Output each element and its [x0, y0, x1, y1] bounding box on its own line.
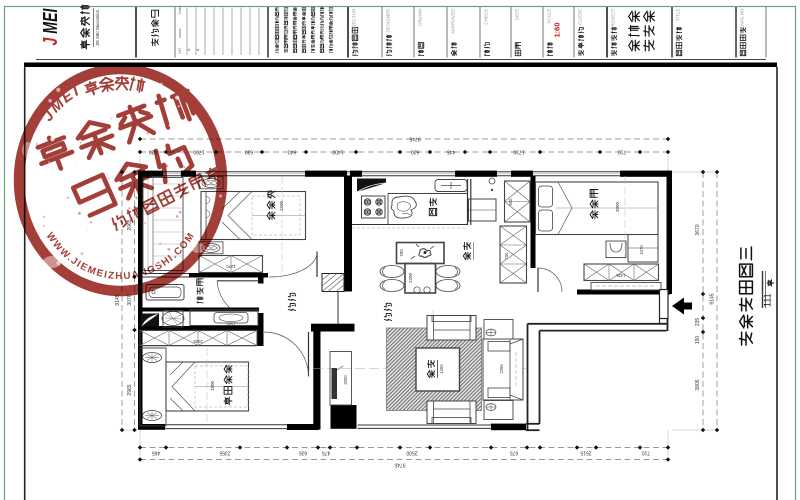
svg-text:700: 700 [399, 249, 404, 257]
svg-text:710: 710 [618, 149, 627, 155]
svg-text:1800: 1800 [210, 380, 215, 391]
svg-text:3805: 3805 [695, 379, 701, 390]
svg-text:NO.: NO. [177, 47, 182, 54]
svg-text:J MEI: J MEI [40, 8, 62, 45]
svg-text:DATE: DATE [515, 9, 520, 21]
svg-text:235: 235 [695, 318, 701, 327]
svg-text:111: 111 [763, 293, 773, 307]
svg-text:640: 640 [288, 149, 297, 155]
svg-text:445: 445 [447, 149, 456, 155]
svg-text:Date: Date [177, 5, 182, 14]
svg-text:DESIGNDIRECTOR: DESIGNDIRECTOR [352, 8, 357, 50]
svg-text:600: 600 [508, 198, 513, 206]
svg-text:APPROVED: APPROVED [451, 8, 456, 34]
svg-text:1700: 1700 [193, 149, 204, 155]
svg-text:9745: 9745 [394, 462, 405, 468]
svg-text:1270: 1270 [226, 264, 236, 269]
svg-text:2265: 2265 [499, 364, 504, 374]
svg-text:Issue: Issue [177, 28, 182, 38]
svg-text:1465: 1465 [439, 364, 444, 374]
svg-text:DWG.NO: DWG.NO [740, 8, 745, 28]
svg-text:630: 630 [245, 149, 254, 155]
svg-text:TITLE: TITLE [676, 9, 681, 22]
svg-text:700: 700 [504, 252, 509, 260]
svg-text:1400: 1400 [332, 149, 343, 155]
svg-text:2965: 2965 [127, 384, 133, 395]
svg-text:2000: 2000 [615, 201, 620, 212]
svg-text:465: 465 [152, 450, 161, 456]
svg-text:2515: 2515 [580, 450, 591, 456]
svg-text:PROJECT: PROJECT [611, 8, 616, 30]
svg-text:1:60: 1:60 [553, 22, 562, 37]
svg-text:3670: 3670 [695, 224, 701, 235]
svg-text:635: 635 [299, 450, 308, 456]
svg-text:DESIGNER: DESIGNER [386, 8, 391, 33]
svg-text:630: 630 [411, 149, 420, 155]
svg-text:CHECK: CHECK [484, 8, 489, 25]
svg-text:475: 475 [322, 450, 331, 456]
svg-text:710: 710 [642, 450, 651, 456]
svg-text:150: 150 [695, 336, 701, 345]
svg-text:2000: 2000 [343, 375, 348, 385]
svg-text:1200: 1200 [408, 272, 413, 283]
svg-text:1500: 1500 [279, 200, 284, 211]
svg-text:675: 675 [510, 450, 519, 456]
svg-text:2355: 2355 [219, 450, 230, 456]
svg-text:1435: 1435 [616, 273, 626, 278]
svg-text:DRAWN: DRAWN [418, 9, 423, 26]
svg-text:9145: 9145 [710, 293, 716, 304]
svg-text:2345: 2345 [193, 339, 203, 344]
svg-text:CLIENT: CLIENT [578, 8, 583, 25]
svg-text:SCALE: SCALE [547, 9, 552, 24]
svg-text:1730: 1730 [513, 149, 524, 155]
svg-text:2500: 2500 [406, 450, 417, 456]
svg-text:1565: 1565 [226, 322, 236, 327]
svg-text:1070: 1070 [639, 245, 644, 255]
svg-text:JIE MEI Decoration: JIE MEI Decoration [95, 9, 100, 46]
svg-text:9745: 9745 [409, 136, 420, 142]
